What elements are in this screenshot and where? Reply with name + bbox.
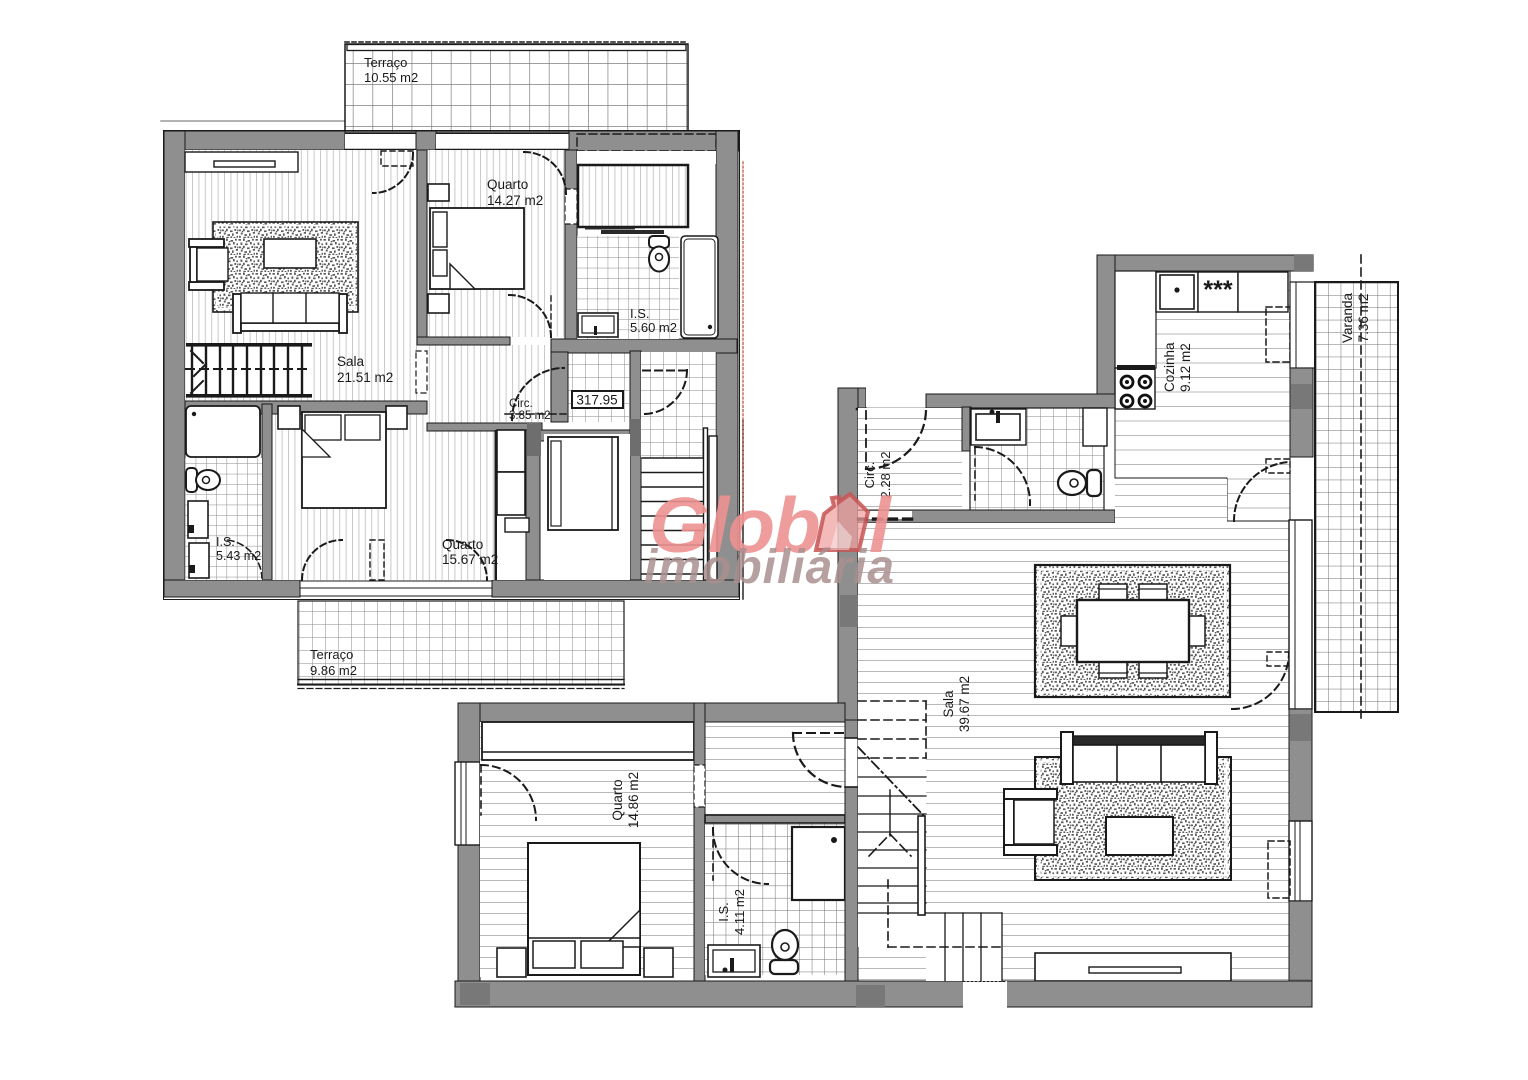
svg-text:Sala: Sala (941, 690, 956, 718)
svg-text:3.85 m2: 3.85 m2 (509, 410, 551, 422)
svg-text:Sala: Sala (337, 354, 365, 369)
svg-text:9.86 m2: 9.86 m2 (310, 663, 357, 678)
svg-text:4.11 m2: 4.11 m2 (732, 889, 747, 935)
svg-text:14.86 m2: 14.86 m2 (626, 772, 641, 828)
svg-text:39.67 m2: 39.67 m2 (957, 676, 972, 732)
svg-text:I.S.: I.S. (716, 902, 731, 922)
svg-text:Varanda: Varanda (1340, 292, 1355, 343)
svg-text:10.55 m2: 10.55 m2 (364, 70, 418, 85)
svg-text:5.60 m2: 5.60 m2 (630, 320, 677, 335)
svg-text:Quarto: Quarto (487, 177, 528, 192)
svg-text:9.12 m2: 9.12 m2 (1178, 343, 1193, 392)
svg-text:I.S.: I.S. (216, 535, 235, 549)
svg-text:I.S.: I.S. (630, 306, 650, 321)
svg-text:14.27 m2: 14.27 m2 (487, 193, 543, 208)
svg-text:Cozinha: Cozinha (1162, 342, 1177, 392)
svg-text:Terraço: Terraço (364, 55, 407, 70)
svg-text:7.36 m2: 7.36 m2 (1356, 294, 1371, 343)
svg-text:Quarto: Quarto (610, 779, 625, 820)
svg-text:Circ.: Circ. (509, 398, 533, 410)
svg-text:21.51 m2: 21.51 m2 (337, 370, 393, 385)
svg-text:317.95: 317.95 (576, 393, 617, 408)
svg-text:imobiliária: imobiliária (644, 541, 895, 594)
svg-text:15.67 m2: 15.67 m2 (442, 552, 498, 567)
svg-text:***: *** (1203, 276, 1232, 304)
svg-text:Terraço: Terraço (310, 647, 353, 662)
